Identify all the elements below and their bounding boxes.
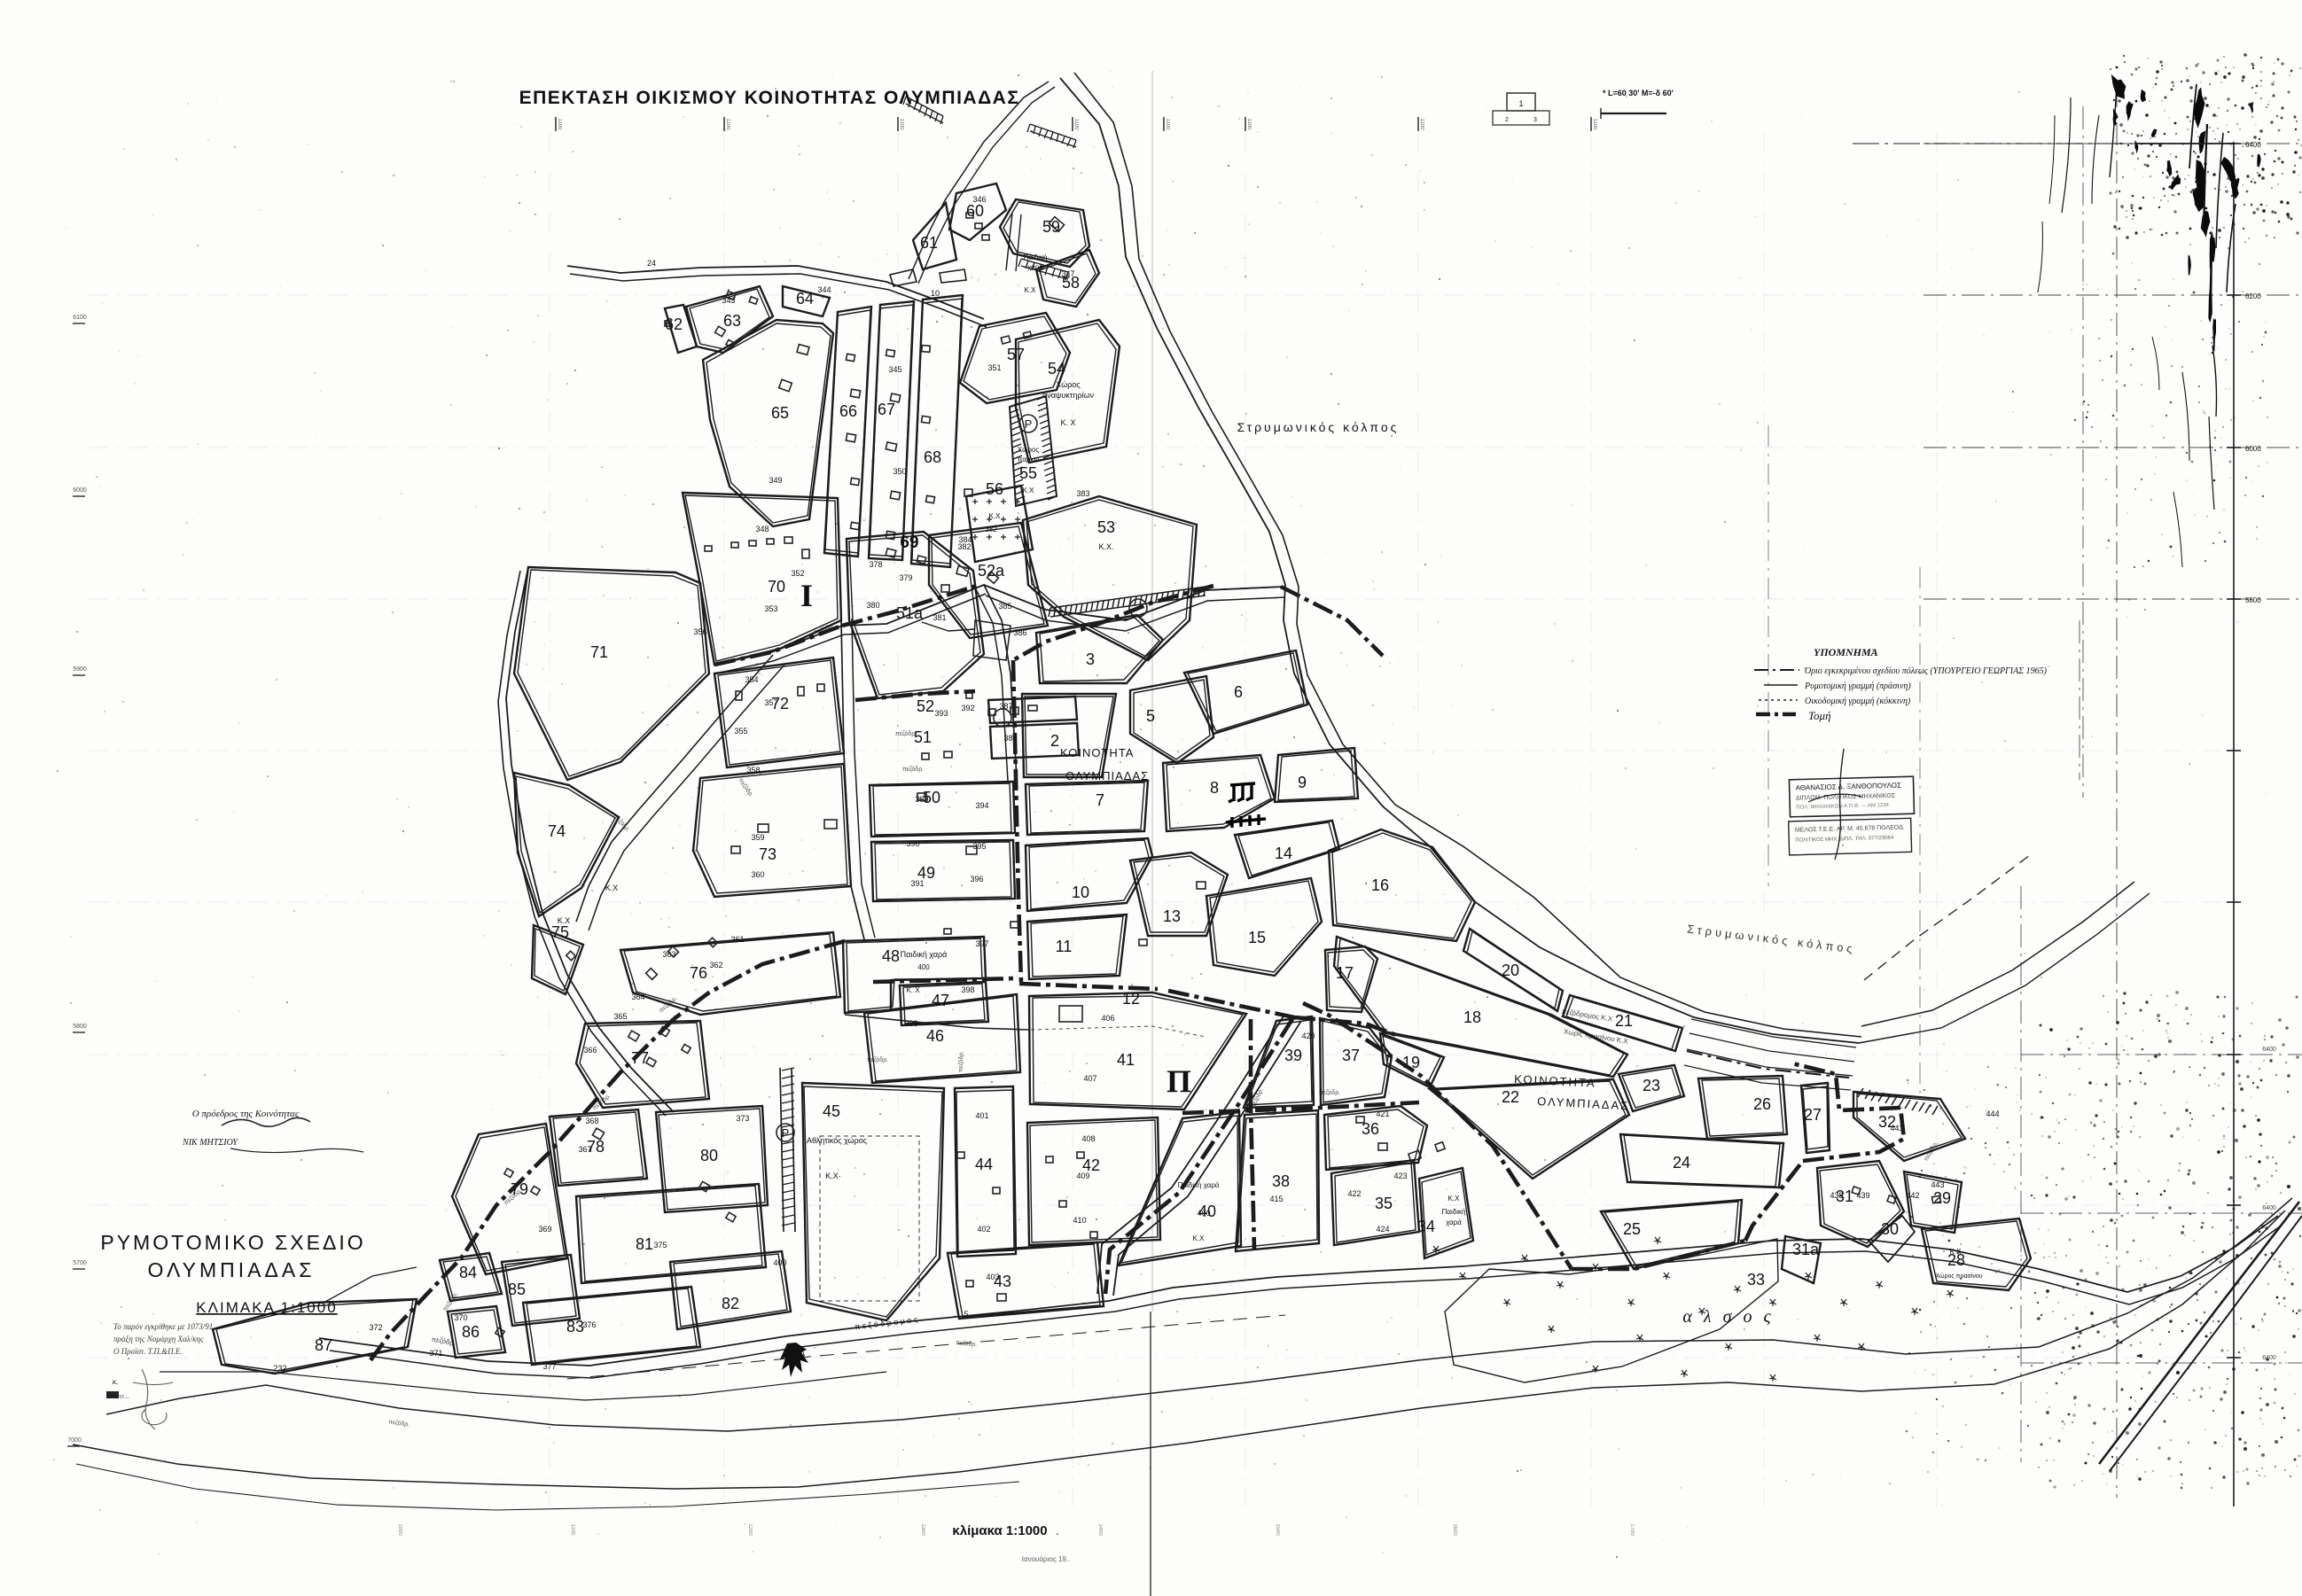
svg-text:395: 395: [972, 842, 986, 851]
svg-text:373: 373: [736, 1114, 749, 1123]
svg-text:ΟΛΥΜΠΙΑΔΑΣ: ΟΛΥΜΠΙΑΔΑΣ: [1065, 769, 1149, 782]
svg-text:Κ.Χ: Κ.Χ: [1023, 487, 1035, 494]
svg-text:5900: 5900: [73, 666, 87, 673]
svg-text:73: 73: [759, 845, 776, 863]
svg-text:1700: 1700: [1629, 1523, 1635, 1536]
svg-text:359: 359: [751, 833, 764, 842]
svg-text:1300: 1300: [920, 1523, 925, 1536]
svg-text:371: 371: [429, 1349, 442, 1358]
svg-text:364: 364: [631, 993, 644, 1001]
svg-text:14: 14: [1275, 845, 1292, 862]
svg-text:423: 423: [1393, 1172, 1407, 1180]
svg-text:ατε...: ατε...: [115, 1392, 129, 1400]
svg-text:5800: 5800: [2245, 596, 2261, 604]
svg-text:353: 353: [764, 604, 777, 613]
svg-text:401: 401: [975, 1111, 988, 1120]
svg-text:ΝΙΚ ΜΗΤΣΙΟΥ: ΝΙΚ ΜΗΤΣΙΟΥ: [182, 1138, 238, 1148]
svg-text:22: 22: [1502, 1088, 1519, 1106]
svg-text:68: 68: [924, 448, 941, 466]
svg-text:362: 362: [709, 961, 722, 969]
svg-text:* L=60 30' M=-δ 60': * L=60 30' M=-δ 60': [1603, 89, 1674, 97]
svg-text:ΡΥΜΟΤΟΜΙΚΟ ΣΧΕΔΙΟ: ΡΥΜΟΤΟΜΙΚΟ ΣΧΕΔΙΟ: [100, 1231, 365, 1254]
svg-text:358: 358: [746, 766, 760, 775]
svg-text:1100: 1100: [899, 119, 904, 131]
svg-text:346: 346: [972, 195, 986, 204]
svg-text:13: 13: [1163, 907, 1181, 925]
svg-text:1100: 1100: [1246, 119, 1252, 131]
svg-text:387: 387: [999, 702, 1012, 711]
svg-text:403: 403: [986, 1273, 999, 1281]
svg-text:1100: 1100: [1419, 119, 1424, 131]
svg-text:64: 64: [796, 290, 814, 308]
svg-text:398: 398: [961, 985, 974, 994]
svg-text:5800: 5800: [73, 1024, 87, 1030]
svg-text:1400: 1400: [1097, 1523, 1103, 1536]
svg-text:15: 15: [1248, 929, 1266, 946]
svg-text:πράξη της Νομάρχη Χαλ/κης: πράξη της Νομάρχη Χαλ/κης: [113, 1335, 204, 1343]
svg-text:Κ.Χ: Κ.Χ: [1193, 1234, 1206, 1242]
svg-text:375: 375: [653, 1241, 667, 1250]
svg-text:8: 8: [1210, 779, 1219, 797]
svg-text:84: 84: [459, 1264, 477, 1281]
svg-text:Παιδική: Παιδική: [1442, 1208, 1466, 1216]
svg-text:Ο Προϊστ. Τ.Π.&Π.Ε.: Ο Προϊστ. Τ.Π.&Π.Ε.: [113, 1347, 183, 1356]
svg-text:9: 9: [1298, 774, 1307, 791]
svg-text:Κ.Χ·: Κ.Χ·: [825, 1172, 841, 1180]
svg-text:πεζόδρ.: πεζόδρ.: [902, 766, 924, 773]
svg-text:Παιδική χαρά: Παιδική χαρά: [901, 950, 948, 959]
svg-text:1100: 1100: [1073, 119, 1079, 131]
svg-text:6400: 6400: [2245, 141, 2261, 149]
svg-text:420: 420: [1301, 1032, 1315, 1040]
svg-text:345: 345: [888, 365, 901, 374]
svg-text:Κ. Χ: Κ. Χ: [1060, 418, 1075, 427]
svg-text:1500: 1500: [1275, 1523, 1280, 1536]
svg-text:31a: 31a: [1792, 1241, 1820, 1258]
svg-text:12: 12: [1122, 990, 1140, 1008]
svg-text:29: 29: [1933, 1189, 1951, 1207]
svg-text:441: 441: [1890, 1124, 1903, 1133]
svg-text:66: 66: [839, 402, 857, 420]
svg-text:P: P: [1025, 417, 1033, 431]
svg-text:81: 81: [636, 1235, 653, 1253]
svg-text:44: 44: [975, 1156, 993, 1173]
svg-text:Χώρος: Χώρος: [1056, 380, 1081, 389]
svg-text:368: 368: [585, 1117, 598, 1125]
svg-text:ΕΠΕΚΤΑΣΗ ΟΙΚΙΣΜΟΥ ΚΟΙΝΟΤΗΤΑΣ: ΕΠΕΚΤΑΣΗ ΟΙΚΙΣΜΟΥ ΚΟΙΝΟΤΗΤΑΣ ΟΛΥΜΠΙΑΔΑΣ: [519, 88, 1020, 108]
svg-text:380: 380: [866, 601, 879, 610]
svg-text:5: 5: [1146, 707, 1155, 725]
svg-text:27: 27: [1804, 1106, 1822, 1124]
svg-text:392: 392: [961, 704, 974, 712]
svg-text:1100: 1100: [725, 119, 730, 131]
svg-text:386: 386: [1013, 628, 1026, 637]
svg-text:3: 3: [1533, 117, 1537, 123]
svg-text:1600: 1600: [1452, 1523, 1457, 1536]
svg-text:1: 1: [1518, 99, 1523, 108]
svg-text:Κ.Χ.: Κ.Χ.: [1098, 542, 1113, 551]
svg-text:400: 400: [917, 963, 930, 971]
svg-text:1000: 1000: [397, 1523, 402, 1536]
svg-text:53: 53: [1097, 518, 1115, 536]
svg-text:400: 400: [1197, 1209, 1210, 1218]
svg-text:48: 48: [882, 947, 900, 965]
svg-text:400: 400: [773, 1258, 786, 1267]
svg-text:Όριο εγκεκριμένου σχεδίου πόλε: Όριο εγκεκριμένου σχεδίου πόλεως (ΥΠΟΥΡΓ…: [1805, 666, 2048, 676]
svg-text:Χώρος πρασίνου: Χώρος πρασίνου: [1935, 1273, 1982, 1280]
svg-text:397: 397: [975, 939, 988, 948]
svg-text:38: 38: [1272, 1172, 1290, 1190]
svg-text:Παιδική: Παιδική: [1024, 253, 1048, 261]
svg-text:κ.: κ.: [113, 1377, 119, 1386]
svg-text:385: 385: [998, 602, 1011, 611]
svg-text:6000: 6000: [73, 487, 87, 494]
svg-text:55: 55: [1019, 464, 1037, 482]
svg-text:65: 65: [771, 404, 789, 422]
svg-text:37: 37: [1342, 1047, 1360, 1064]
svg-text:47: 47: [932, 992, 949, 1009]
svg-text:Κ.Χ: Κ.Χ: [1025, 286, 1037, 294]
svg-text:376: 376: [582, 1320, 596, 1329]
svg-text:407: 407: [1083, 1074, 1096, 1083]
svg-text:Δ: Δ: [800, 1349, 805, 1358]
svg-text:86: 86: [462, 1323, 480, 1341]
svg-text:443: 443: [1931, 1180, 1944, 1189]
svg-text:I: I: [800, 578, 813, 613]
svg-text:45: 45: [823, 1102, 840, 1120]
svg-text:6100: 6100: [73, 315, 87, 321]
svg-text:354: 354: [745, 675, 758, 684]
svg-text:αναψυκτηρίων: αναψυκτηρίων: [1042, 391, 1094, 400]
svg-text:10: 10: [1072, 884, 1089, 901]
svg-text:20: 20: [1502, 961, 1519, 979]
svg-text:1200: 1200: [747, 1523, 753, 1536]
svg-text:71: 71: [590, 643, 608, 661]
svg-text:52a: 52a: [978, 562, 1005, 580]
svg-text:52: 52: [917, 697, 934, 715]
svg-text:388: 388: [1003, 734, 1017, 743]
svg-text:1100: 1100: [1592, 119, 1597, 131]
svg-text:5700: 5700: [73, 1260, 87, 1266]
svg-text:6200: 6200: [2245, 292, 2261, 300]
svg-text:17: 17: [1336, 964, 1354, 982]
svg-text:56: 56: [986, 480, 1003, 498]
svg-text:10: 10: [931, 289, 940, 298]
svg-text:1100: 1100: [570, 1524, 575, 1537]
svg-text:76: 76: [690, 964, 707, 982]
svg-text:409: 409: [1076, 1172, 1089, 1180]
svg-text:70: 70: [768, 578, 785, 596]
svg-text:363: 363: [662, 950, 675, 959]
svg-text:Αθλητικός χώρος: Αθλητικός χώρος: [807, 1136, 868, 1145]
svg-text:1100: 1100: [1165, 119, 1170, 131]
svg-text:24: 24: [1673, 1154, 1690, 1172]
svg-text:389: 389: [915, 795, 928, 804]
svg-text:424: 424: [1376, 1225, 1389, 1234]
svg-text:396: 396: [970, 875, 983, 884]
svg-text:26: 26: [1753, 1095, 1771, 1113]
svg-text:6400: 6400: [2262, 1355, 2276, 1361]
svg-text:372: 372: [369, 1323, 382, 1332]
svg-text:ΟΛΥΜΠΙΑΔΑΣ: ΟΛΥΜΠΙΑΔΑΣ: [148, 1258, 316, 1281]
svg-text:349: 349: [769, 476, 782, 485]
svg-text:394: 394: [975, 801, 988, 810]
svg-text:83: 83: [566, 1318, 584, 1335]
svg-text:Το παρόν εγκρίθηκε με 1073/91: Το παρόν εγκρίθηκε με 1073/91: [113, 1322, 213, 1331]
svg-text:33: 33: [1747, 1271, 1765, 1288]
svg-text:370: 370: [454, 1313, 467, 1322]
svg-text:365: 365: [613, 1012, 627, 1021]
svg-text:πεζόδρ.: πεζόδρ.: [867, 1056, 888, 1063]
svg-text:23: 23: [1643, 1077, 1660, 1094]
svg-text:382: 382: [985, 526, 997, 533]
svg-text:69: 69: [900, 533, 918, 552]
svg-text:11: 11: [1056, 938, 1073, 955]
svg-text:Π: Π: [1167, 1063, 1191, 1099]
svg-text:391: 391: [910, 879, 924, 888]
svg-text:21: 21: [1615, 1012, 1633, 1030]
svg-text:54: 54: [1048, 360, 1065, 378]
svg-text:57: 57: [1007, 346, 1025, 363]
svg-text:7000: 7000: [67, 1437, 82, 1444]
svg-text:24: 24: [647, 259, 656, 268]
svg-text:383: 383: [1076, 489, 1089, 498]
svg-text:381: 381: [933, 613, 946, 622]
svg-text:Κ. Χ: Κ. Χ: [906, 986, 920, 994]
svg-text:384: 384: [958, 535, 972, 544]
svg-text:6: 6: [1234, 683, 1243, 701]
svg-text:357: 357: [764, 698, 777, 707]
svg-text:348: 348: [755, 525, 769, 533]
svg-text:356: 356: [693, 627, 706, 636]
svg-text:62: 62: [665, 315, 683, 333]
svg-text:75: 75: [551, 923, 569, 941]
svg-text:πεζόδρ.: πεζόδρ.: [895, 730, 917, 737]
svg-text:κλίμακα 1:1000: κλίμακα 1:1000: [952, 1523, 1047, 1538]
svg-text:74: 74: [548, 822, 566, 840]
svg-text:18: 18: [1463, 1008, 1481, 1026]
svg-text:25: 25: [1623, 1220, 1641, 1238]
svg-text:1100: 1100: [557, 119, 562, 131]
svg-text:Κ Χ: Κ Χ: [1950, 1248, 1963, 1256]
svg-text:α λ σ ο ς: α λ σ ο ς: [1682, 1307, 1774, 1327]
svg-text:80: 80: [700, 1147, 718, 1164]
svg-text:85: 85: [508, 1281, 526, 1298]
svg-text:Χώρος: Χώρος: [1018, 446, 1040, 454]
svg-text:422: 422: [1347, 1189, 1361, 1198]
svg-text:Κ.Χ: Κ.Χ: [989, 512, 1002, 520]
svg-text:2: 2: [1505, 117, 1509, 123]
svg-text:χαρά: χαρά: [1446, 1218, 1462, 1226]
svg-text:402: 402: [977, 1225, 990, 1234]
svg-text:393: 393: [934, 709, 948, 718]
svg-text:51a: 51a: [896, 604, 924, 622]
svg-text:421: 421: [1376, 1109, 1389, 1118]
svg-text:Στρυμωνικός κόλπος: Στρυμωνικός κόλπος: [1237, 420, 1400, 434]
svg-text:ΥΠΟΜΝΗΜΑ: ΥΠΟΜΝΗΜΑ: [1814, 646, 1878, 658]
svg-text:351: 351: [987, 363, 1001, 372]
svg-text:χαρά: χαρά: [1027, 263, 1043, 271]
svg-text:46: 46: [926, 1027, 944, 1045]
svg-text:Παιδική χαρά: Παιδική χαρά: [1178, 1181, 1220, 1189]
svg-text:60: 60: [966, 202, 984, 220]
svg-text:16: 16: [1371, 876, 1389, 894]
svg-text:P: P: [782, 1126, 790, 1140]
svg-text:379: 379: [899, 573, 912, 582]
svg-text:35: 35: [1375, 1195, 1393, 1212]
svg-text:444: 444: [1986, 1109, 1999, 1118]
svg-text:406: 406: [1101, 1014, 1114, 1023]
svg-text:355: 355: [734, 727, 747, 736]
svg-text:390: 390: [906, 839, 919, 848]
svg-text:34: 34: [1417, 1218, 1435, 1235]
svg-text:350: 350: [893, 467, 906, 476]
svg-text:367: 367: [578, 1145, 591, 1154]
svg-text:2: 2: [1050, 732, 1059, 750]
svg-text:415: 415: [1269, 1195, 1283, 1203]
svg-text:366: 366: [583, 1046, 597, 1055]
svg-text:439: 439: [1856, 1191, 1869, 1200]
svg-text:6000: 6000: [2245, 445, 2261, 453]
svg-text:360: 360: [751, 870, 764, 879]
svg-text:399: 399: [904, 1019, 917, 1028]
svg-text:ΚΛΙΜΑΚΑ 1:1000: ΚΛΙΜΑΚΑ 1:1000: [196, 1299, 337, 1316]
svg-text:3: 3: [1086, 650, 1095, 668]
svg-text:πεζόδρ.: πεζόδρ.: [957, 1051, 965, 1073]
svg-text:Τομή: Τομή: [1808, 709, 1831, 722]
svg-text:39: 39: [1284, 1047, 1302, 1064]
svg-text:Ιανουάριος 19..: Ιανουάριος 19..: [1022, 1555, 1071, 1563]
svg-text:442: 442: [1906, 1191, 1919, 1200]
svg-text:408: 408: [1081, 1134, 1095, 1143]
svg-text:Κ.Χ: Κ.Χ: [605, 884, 619, 892]
svg-text:Οικοδομική γραμμή (κόκκινη): Οικοδομική γραμμή (κόκκινη): [1805, 697, 1911, 706]
svg-text:410: 410: [1073, 1216, 1086, 1225]
svg-text:63: 63: [723, 312, 741, 330]
svg-text:41: 41: [1117, 1051, 1135, 1069]
svg-text:6400: 6400: [2262, 1047, 2276, 1053]
svg-text:πεζόδρ.: πεζόδρ.: [1319, 1089, 1340, 1096]
svg-text:7: 7: [1096, 791, 1104, 809]
svg-text:Ρυμοτομική γραμμή (πράσινη): Ρυμοτομική γραμμή (πράσινη): [1804, 681, 1911, 691]
svg-text:87: 87: [315, 1336, 332, 1354]
svg-text:Κ.Χ: Κ.Χ: [1448, 1195, 1461, 1203]
svg-text:361: 361: [730, 935, 744, 944]
svg-text:344: 344: [817, 285, 831, 294]
svg-text:438: 438: [1830, 1191, 1843, 1200]
svg-text:ΚΟΙΝΟΤΗΤΑ: ΚΟΙΝΟΤΗΤΑ: [1060, 746, 1134, 759]
svg-text:232: 232: [273, 1364, 286, 1373]
svg-text:Ο πρόεδρος της Κοινότητας: Ο πρόεδρος της Κοινότητας: [192, 1109, 300, 1119]
svg-text:378: 378: [869, 560, 882, 569]
svg-text:352: 352: [791, 569, 804, 578]
svg-text:παρκιν: παρκιν: [1018, 455, 1039, 463]
svg-text:67: 67: [878, 401, 895, 418]
svg-text:6400: 6400: [2262, 1205, 2276, 1211]
svg-text:Κ.Χ: Κ.Χ: [558, 916, 571, 925]
